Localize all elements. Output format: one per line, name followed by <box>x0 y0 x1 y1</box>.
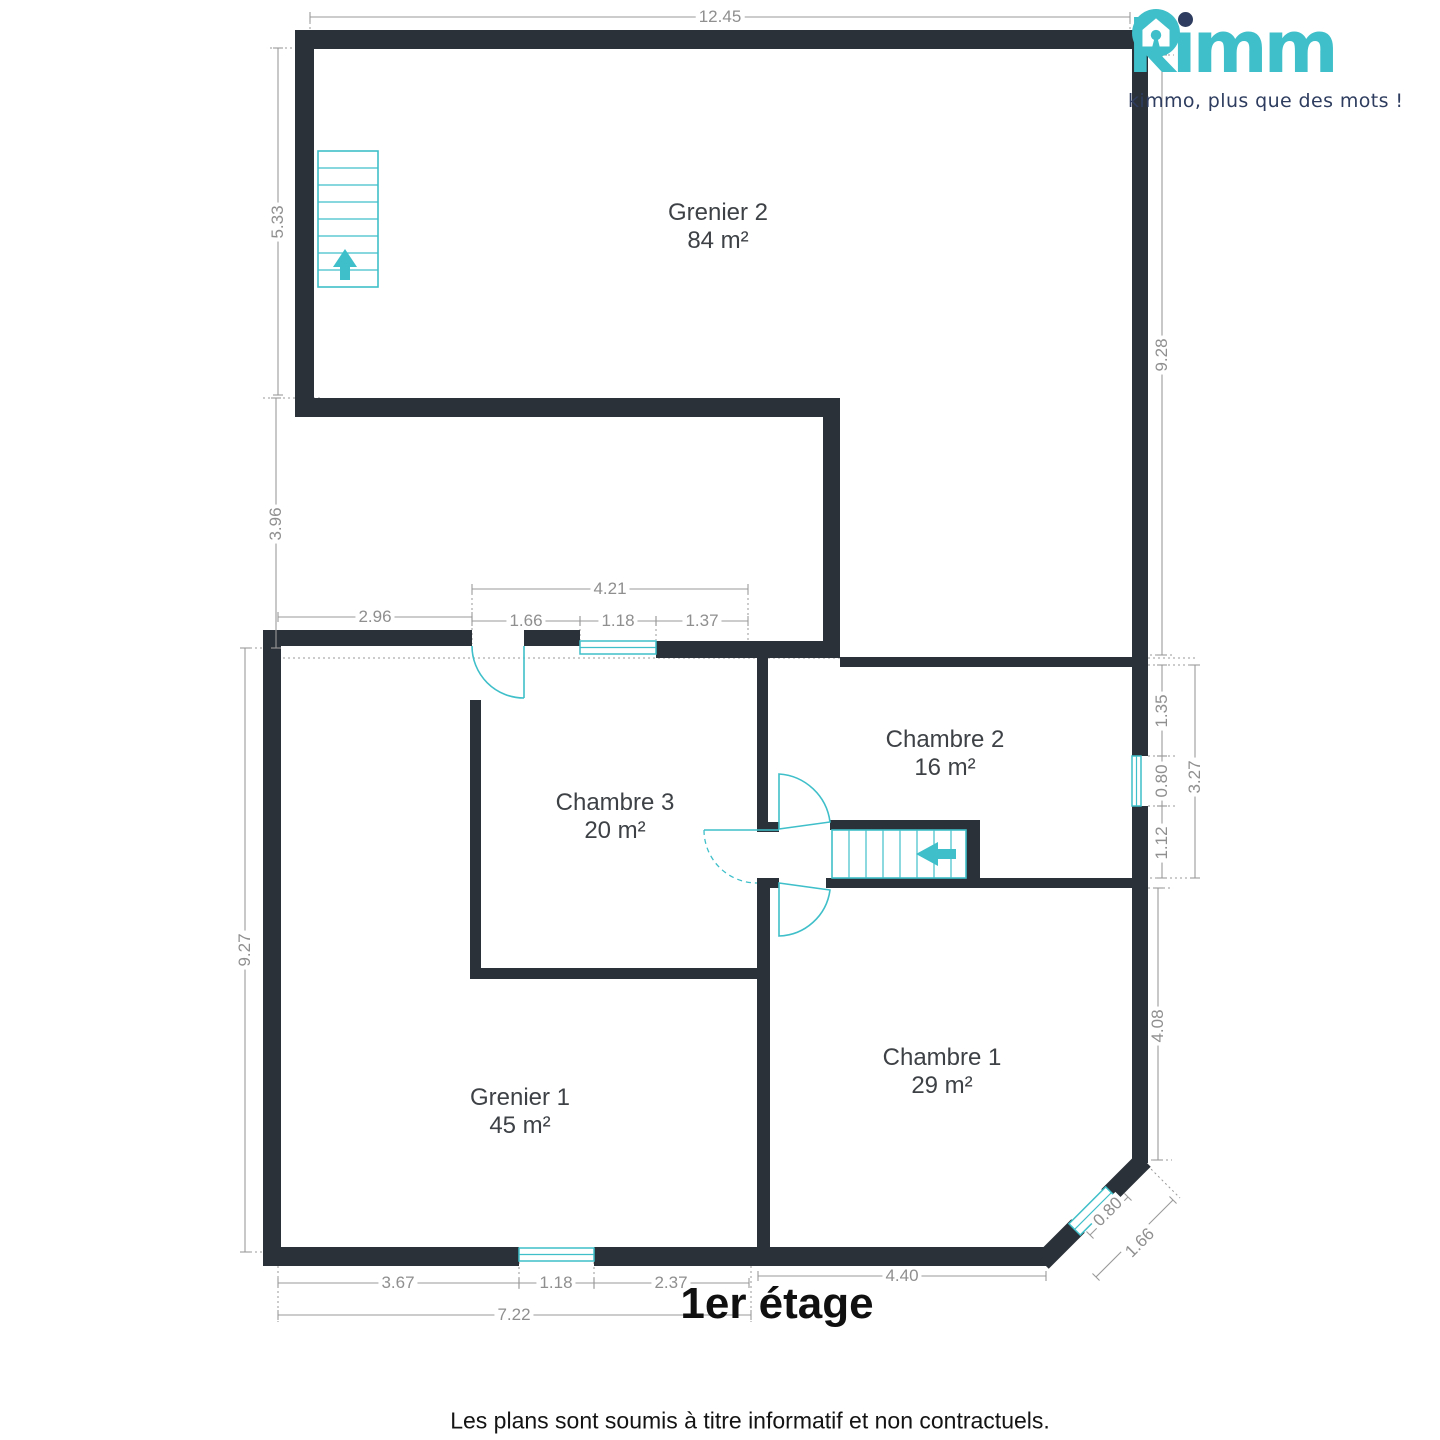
dim-bottom-right: 4.40 <box>882 1267 921 1285</box>
floor-plan-page: 12.45 5.33 3.96 9.27 9.28 2.96 4.21 1.66… <box>0 0 1440 1440</box>
wall-chambre1-top <box>826 878 1148 888</box>
wall-bottom-a <box>263 1247 519 1266</box>
room-area: 29 m² <box>911 1072 972 1099</box>
dim-left-mid: 3.96 <box>267 504 285 543</box>
dim-left-lower: 9.27 <box>236 930 254 969</box>
wall-top-outer <box>295 30 1148 49</box>
dim-mid-b: 1.18 <box>598 612 637 630</box>
wall-chambre3-right <box>757 658 768 822</box>
room-name: Chambre 3 <box>556 789 675 816</box>
dim-bottom-b: 1.18 <box>536 1274 575 1292</box>
dim-mid-left: 2.96 <box>355 608 394 626</box>
logo-wordmark: kımm <box>1128 8 1432 86</box>
room-area: 20 m² <box>584 817 645 844</box>
logo-tagline: kimmo, plus que des mots ! <box>1128 90 1432 112</box>
wall-chambre1-left <box>757 878 770 1266</box>
wall-bottom-b <box>594 1247 1049 1266</box>
floor-title: 1er étage <box>680 1279 873 1329</box>
room-label-chambre2: Chambre 2 16 m² <box>886 726 1005 782</box>
staircase-grenier2 <box>318 151 378 287</box>
wall-chambre2-top <box>840 657 1133 667</box>
room-name: Chambre 1 <box>883 1044 1002 1071</box>
wall-right-outer-lower <box>1132 806 1148 1163</box>
wall-left-lower <box>263 630 281 1266</box>
wall-lower-top-a <box>263 630 472 646</box>
window-bottom <box>519 1248 594 1261</box>
room-label-grenier1: Grenier 1 45 m² <box>470 1084 570 1140</box>
staircase-hall <box>832 830 966 878</box>
door-leaf-chambre1 <box>779 883 830 936</box>
wall-mid-vertical <box>823 398 840 658</box>
disclaimer-text: Les plans sont soumis à titre informatif… <box>450 1408 1050 1435</box>
wall-left-upper <box>295 30 314 417</box>
dim-top-width: 12.45 <box>696 8 745 26</box>
dim-right-upper: 9.28 <box>1153 335 1171 374</box>
wall-lower-top-c <box>656 641 840 658</box>
windows <box>519 641 1141 1261</box>
dim-mid-total: 4.21 <box>590 580 629 598</box>
room-area: 16 m² <box>914 754 975 781</box>
wall-right-outer-upper <box>1132 30 1148 756</box>
room-name: Chambre 2 <box>886 726 1005 753</box>
room-label-grenier2: Grenier 2 84 m² <box>668 199 768 255</box>
room-label-chambre1: Chambre 1 29 m² <box>883 1044 1002 1100</box>
wall-stairwell-right <box>966 820 980 888</box>
dim-left-upper: 5.33 <box>269 202 287 241</box>
dim-right-total: 3.27 <box>1186 757 1204 796</box>
wall-grenier2-bottom <box>295 398 840 417</box>
window-top <box>580 641 656 654</box>
wall-chambre3-bottom <box>470 968 768 979</box>
dim-bottom-a: 3.67 <box>378 1274 417 1292</box>
dim-mid-a: 1.66 <box>506 612 545 630</box>
door-chambre3-hall <box>704 830 779 883</box>
door-leaf-hall-upper <box>779 774 830 829</box>
door-chambre3-top <box>472 646 524 698</box>
wall-chamfer-lower <box>1042 1226 1078 1262</box>
wall-chamfer-upper <box>1108 1160 1144 1196</box>
room-area: 84 m² <box>687 227 748 254</box>
dim-right-c: 1.12 <box>1153 823 1171 862</box>
house-icon <box>1131 8 1181 58</box>
room-label-chambre3: Chambre 3 20 m² <box>556 789 675 845</box>
wall-lower-top-b <box>524 630 580 646</box>
room-name: Grenier 2 <box>668 199 768 226</box>
dim-right-a: 1.35 <box>1153 691 1171 730</box>
window-right <box>1132 756 1141 806</box>
room-area: 45 m² <box>489 1112 550 1139</box>
wall-chambre3-left <box>470 700 481 968</box>
wall-stairs-top <box>830 820 980 830</box>
dim-bottom-total: 7.22 <box>494 1306 533 1324</box>
dim-right-lower: 4.08 <box>1149 1006 1167 1045</box>
dim-right-b: 0.80 <box>1153 761 1171 800</box>
kimmo-logo: kımm kimmo, plus que des mots ! <box>1128 8 1432 112</box>
dim-mid-c: 1.37 <box>682 612 721 630</box>
room-name: Grenier 1 <box>470 1084 570 1111</box>
